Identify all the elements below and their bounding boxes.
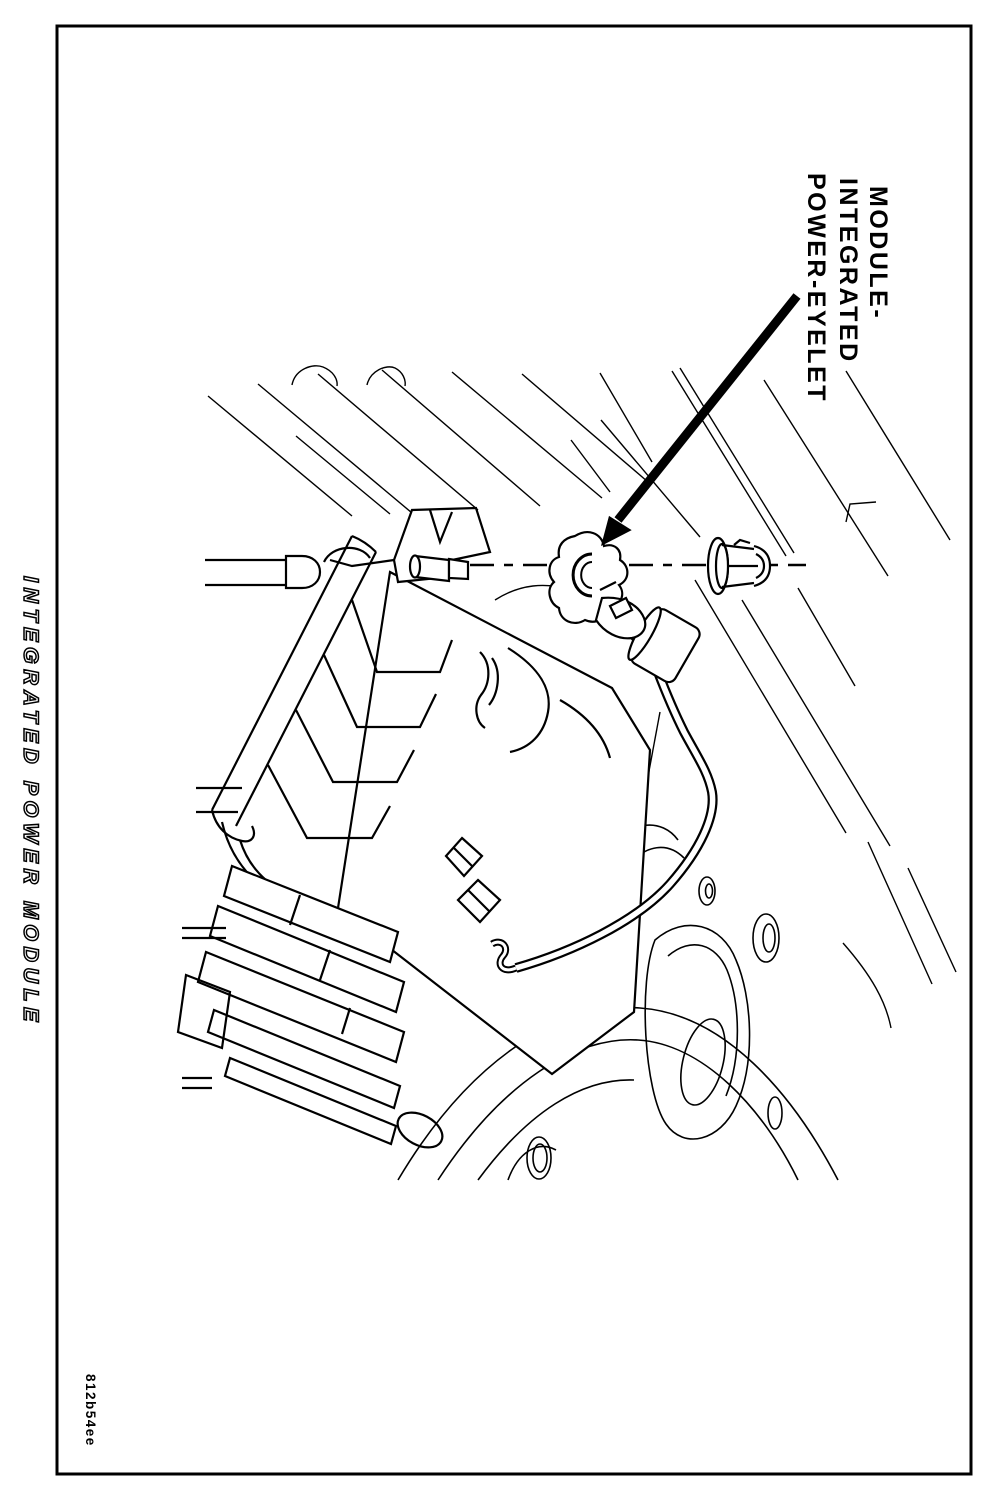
support-rod bbox=[205, 548, 370, 588]
illustration: INTEGRATED POWER MODULE MODULE- INTEGRAT… bbox=[0, 0, 996, 1504]
callout-label-line2: INTEGRATED bbox=[834, 178, 862, 364]
page-title: INTEGRATED POWER MODULE bbox=[19, 576, 43, 1027]
callout-label-line1: MODULE- bbox=[864, 186, 892, 320]
callout-arrow-icon bbox=[601, 296, 797, 546]
power-eyelet-terminal bbox=[549, 532, 645, 638]
callout-label-line3: POWER-EYELET bbox=[802, 173, 830, 403]
callout-label: MODULE- INTEGRATED POWER-EYELET bbox=[802, 173, 892, 403]
manual-page: INTEGRATED POWER MODULE MODULE- INTEGRAT… bbox=[0, 0, 996, 1504]
hex-nut bbox=[708, 538, 770, 594]
figure-code: 812b54ee bbox=[83, 1374, 98, 1447]
